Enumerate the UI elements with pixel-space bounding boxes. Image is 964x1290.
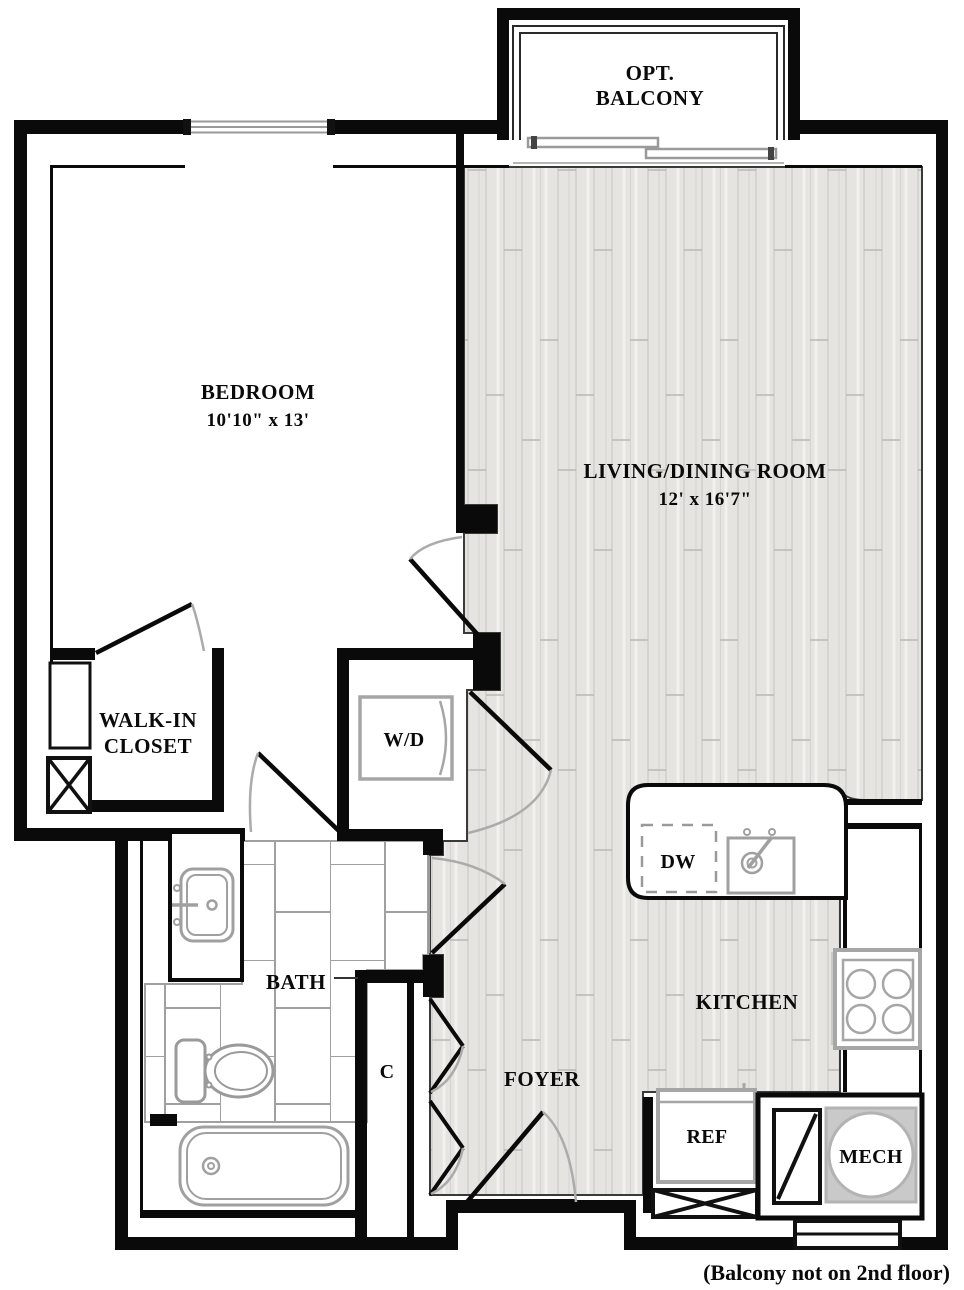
walkin-closet-wall-bottom: [90, 800, 224, 812]
bedroom-window: [183, 119, 335, 135]
exterior-wall-left-lower: [115, 828, 128, 1250]
exterior-wall-right: [936, 120, 948, 1250]
balcony-label-line1: OPT.: [626, 61, 675, 85]
closet-c-wall-left: [355, 970, 367, 1237]
exterior-wall-bottom-left: [115, 1237, 458, 1250]
range-stove: [831, 950, 920, 1048]
balcony-note: (Balcony not on 2nd floor): [703, 1260, 950, 1285]
bathtub: [180, 1127, 348, 1205]
balcony-label-line2: BALCONY: [596, 86, 705, 110]
walkin-closet-wall-right: [212, 648, 224, 812]
exterior-wall-top-right: [788, 120, 948, 134]
bedroom-door-jamb-bottom: [473, 633, 500, 690]
living-dims: 12' x 16'7": [658, 489, 751, 510]
living-inner-line-top-left: [464, 165, 509, 168]
floor-plan-canvas: OPT. BALCONY BEDROOM 10'10" x 13' LIVING…: [0, 0, 964, 1290]
mech-label: MECH: [839, 1146, 903, 1168]
dw-label: DW: [660, 851, 695, 873]
bedroom-inner-line-top-a: [50, 165, 185, 168]
living-inner-line-top: [785, 165, 922, 168]
bedroom-inner-line-top-b: [333, 165, 456, 168]
exterior-wall-left-upper: [14, 120, 27, 841]
bedroom-living-wall: [456, 134, 464, 505]
kitchen-wall-top-b: [846, 823, 922, 829]
bedroom-door-jamb-top: [456, 505, 497, 533]
floor-plan: OPT. BALCONY BEDROOM 10'10" x 13' LIVING…: [0, 0, 964, 1290]
balcony-wall-top: [497, 8, 800, 20]
bath-vanity: [170, 832, 242, 980]
kitchen-label: KITCHEN: [696, 990, 799, 1014]
shaft-x-box: [48, 758, 90, 812]
tub-wall-stub: [150, 1114, 177, 1126]
ref-label: REF: [687, 1126, 728, 1148]
wd-label: W/D: [384, 729, 425, 751]
wd-closet-wall-top: [337, 648, 473, 660]
closet-c-label: C: [380, 1061, 395, 1083]
closet-c-wall-top: [355, 970, 443, 983]
foyer-label: FOYER: [504, 1067, 580, 1091]
kitchen-counter: [628, 785, 846, 898]
kitchen-wall-top-a: [846, 799, 922, 805]
wd-closet-wall-left: [337, 648, 349, 841]
walkin-closet-label-line1: WALK-IN: [99, 708, 197, 732]
cabinet-x-box: [653, 1190, 757, 1217]
entry-door-sill: [467, 1199, 577, 1202]
exterior-wall-jog: [14, 828, 128, 841]
bedroom-label: BEDROOM: [201, 380, 315, 404]
bath-label: BATH: [266, 970, 326, 994]
wd-closet-jamb: [423, 829, 443, 855]
walkin-closet-wall-stub: [50, 648, 95, 660]
bath-wall-bottom: [140, 1210, 362, 1218]
living-label: LIVING/DINING ROOM: [584, 459, 827, 483]
bedroom-dims: 10'10" x 13': [206, 410, 309, 431]
closet-c-wall-right: [407, 983, 414, 1237]
shaft-open-box: [50, 663, 90, 748]
mech-vent-box: [795, 1221, 900, 1248]
walkin-closet-label-line2: CLOSET: [104, 734, 192, 758]
toilet: [176, 1040, 273, 1102]
bedroom-inner-line-left: [50, 165, 53, 663]
bath-inner-line-left: [140, 841, 143, 1212]
